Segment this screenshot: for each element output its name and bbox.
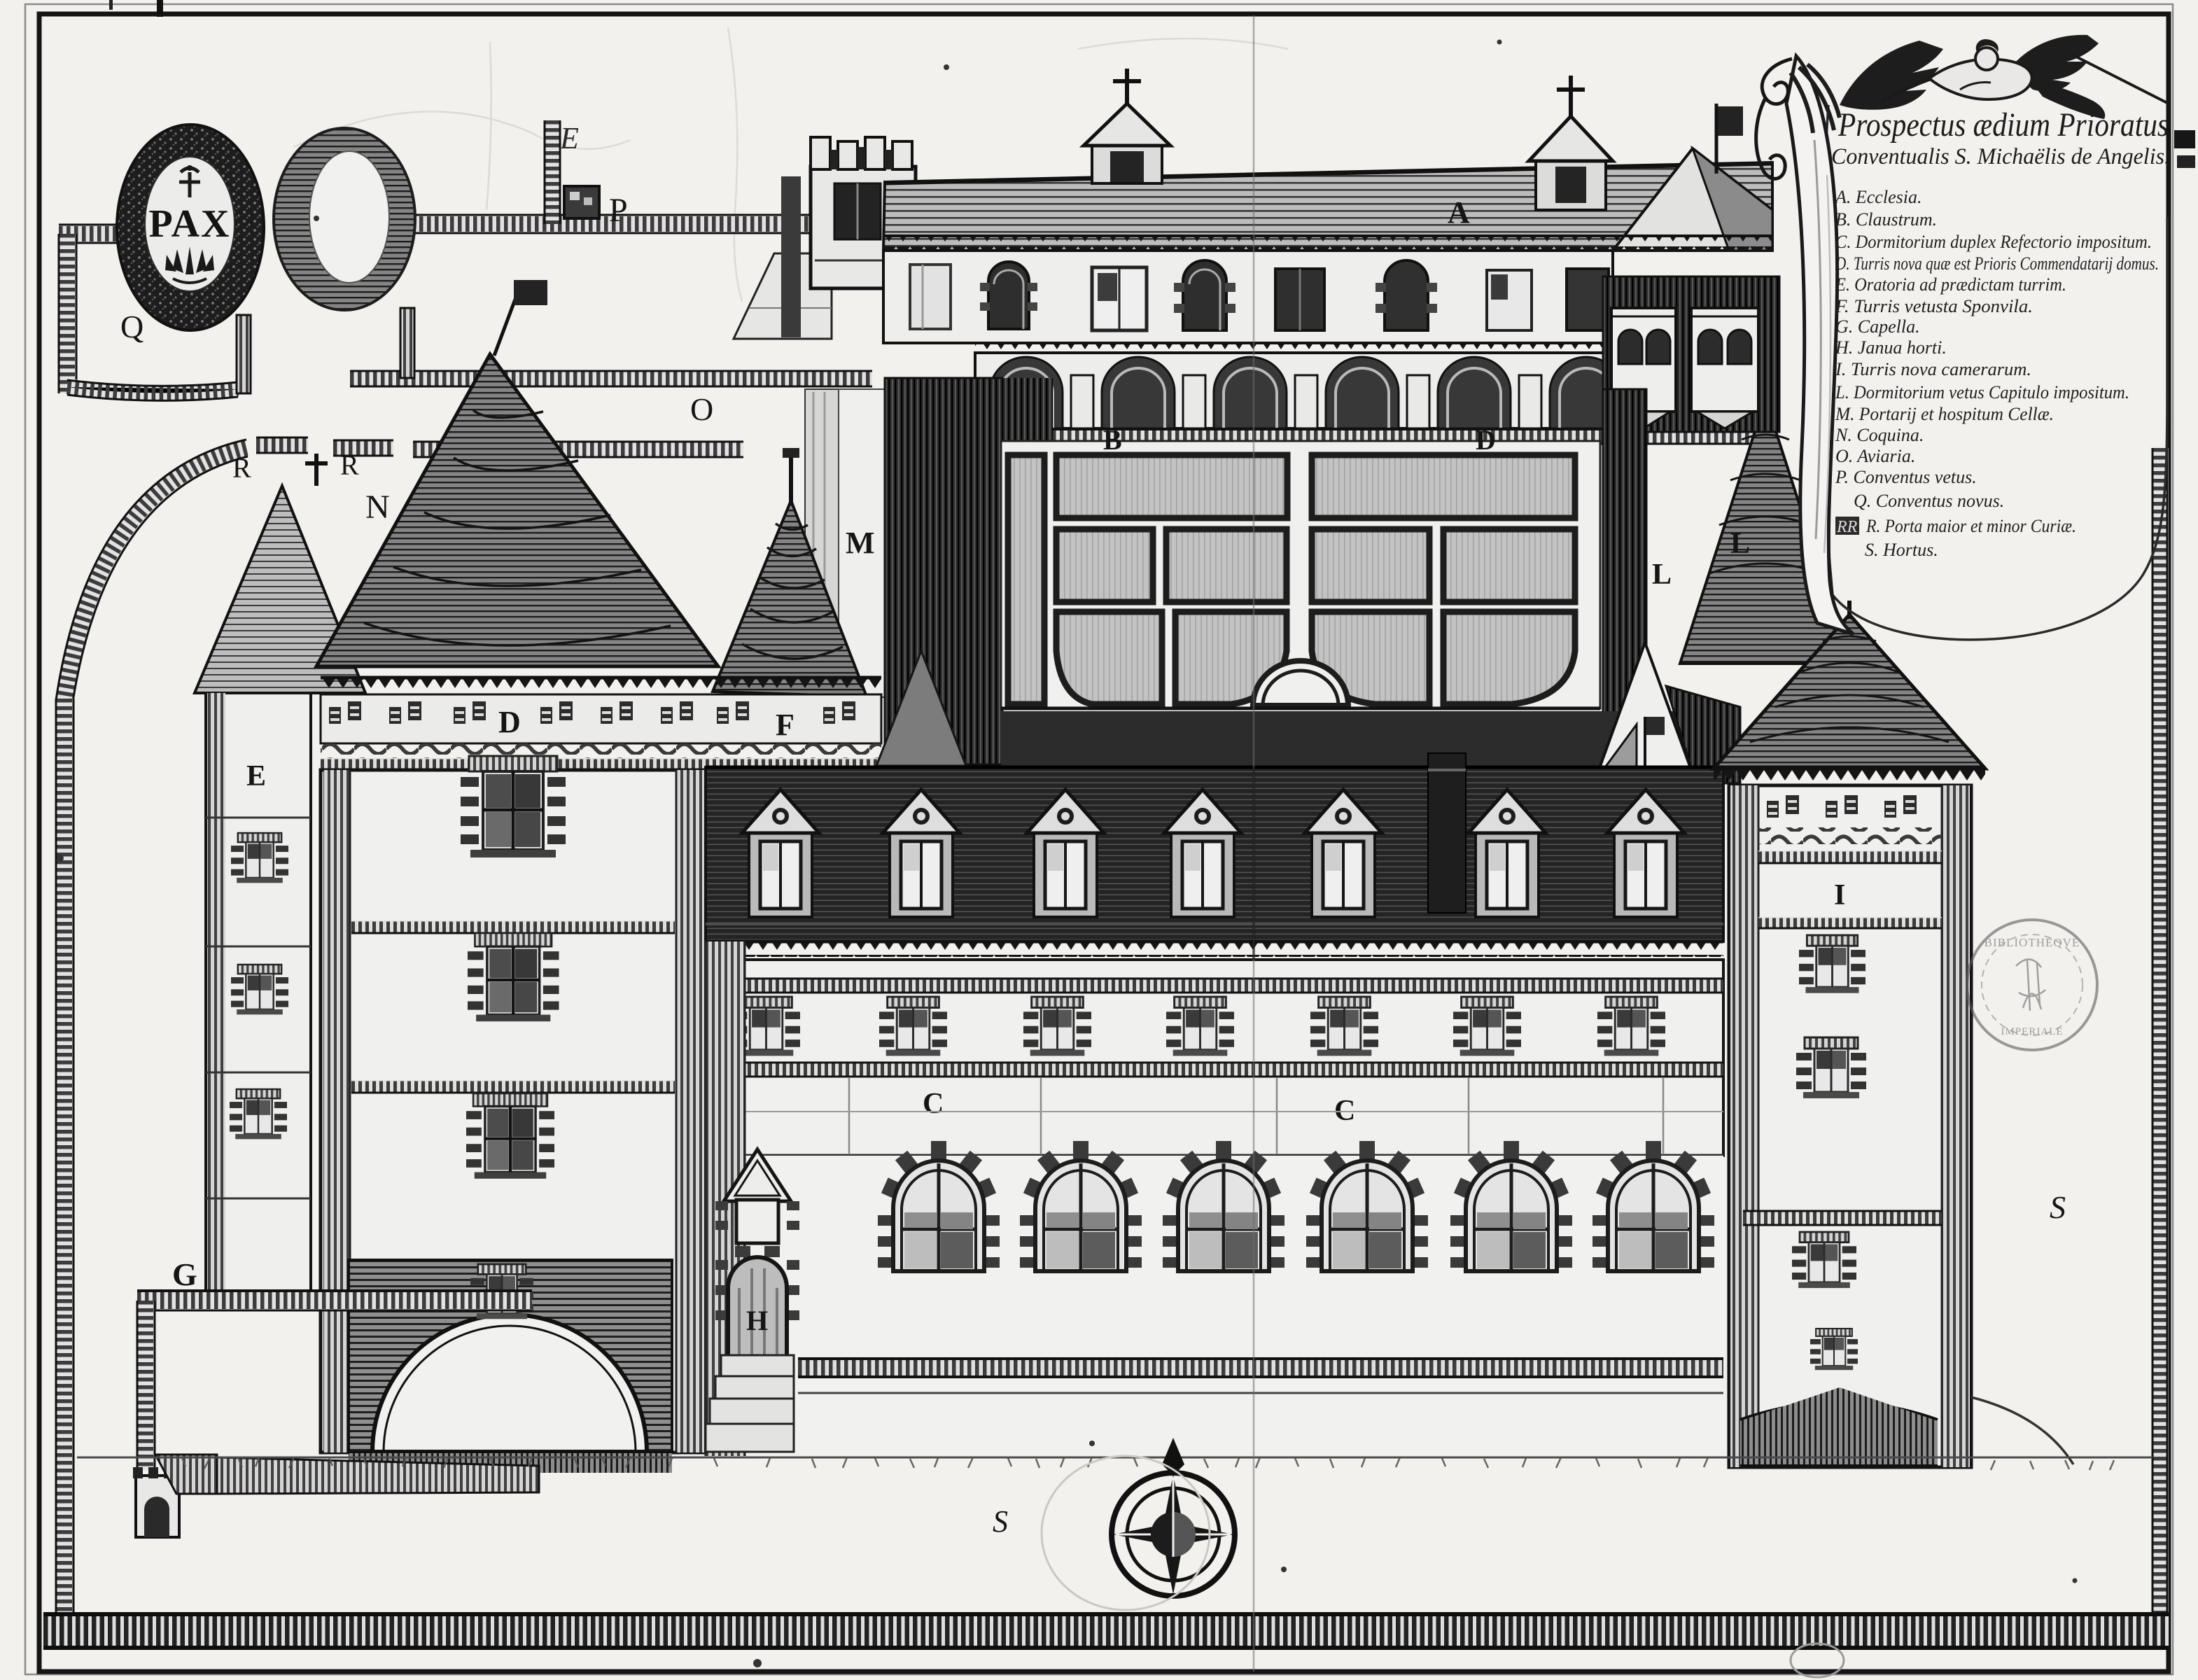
svg-text:P. Conventus vetus.: P. Conventus vetus. [1835, 467, 1977, 487]
svg-text:A. Ecclesia.: A. Ecclesia. [1834, 187, 1921, 207]
svg-text:F: F [776, 708, 794, 742]
svg-text:O: O [690, 391, 713, 427]
svg-text:I: I [1834, 879, 1845, 911]
svg-text:H: H [746, 1305, 768, 1336]
svg-text:R. Porta maior et minor Curiæ.: R. Porta maior et minor Curiæ. [1865, 516, 2076, 536]
svg-text:Q. Conventus novus.: Q. Conventus novus. [1854, 491, 2004, 511]
svg-text:M: M [846, 526, 875, 560]
svg-text:F. Turris vetusta Sponvila.: F. Turris vetusta Sponvila. [1835, 296, 2033, 316]
svg-text:Q: Q [120, 309, 143, 344]
svg-text:C. Dormitorium duplex Refector: C. Dormitorium duplex Refectorio imposit… [1835, 232, 2152, 252]
svg-text:B: B [1103, 424, 1122, 456]
svg-text:R: R [340, 449, 359, 481]
svg-text:D: D [1476, 424, 1496, 456]
svg-text:BIBLIOTHEQVE: BIBLIOTHEQVE [1984, 936, 2080, 949]
svg-text:RR: RR [1836, 518, 1858, 536]
svg-text:D: D [498, 705, 521, 739]
svg-text:N. Coquina.: N. Coquina. [1835, 425, 1924, 445]
svg-text:IMPERIALE: IMPERIALE [2001, 1026, 2064, 1037]
svg-text:Conventualis S. Michaëlis de A: Conventualis S. Michaëlis de Angelis. [1831, 144, 2170, 169]
svg-text:E: E [246, 760, 266, 792]
svg-text:I. Turris nova camerarum.: I. Turris nova camerarum. [1835, 359, 2031, 379]
svg-text:G: G [172, 1256, 197, 1292]
svg-text:O. Aviaria.: O. Aviaria. [1835, 446, 1915, 466]
svg-text:D. Turris nova quæ est Prioris: D. Turris nova quæ est Prioris Commendat… [1835, 253, 2159, 274]
svg-text:L: L [1652, 559, 1672, 591]
svg-text:C: C [923, 1088, 944, 1120]
svg-text:L: L [1730, 528, 1750, 560]
svg-text:P: P [609, 192, 628, 229]
svg-text:E: E [559, 121, 579, 155]
svg-text:N: N [365, 489, 390, 526]
svg-text:B. Claustrum.: B. Claustrum. [1835, 209, 1937, 230]
svg-text:L. Dormitorium vetus Capitulo: L. Dormitorium vetus Capitulo impositum. [1835, 382, 2129, 402]
svg-text:H. Janua horti.: H. Janua horti. [1835, 337, 1947, 358]
svg-text:A: A [1448, 195, 1470, 230]
svg-text:PAX: PAX [149, 202, 231, 246]
svg-text:G. Capella.: G. Capella. [1835, 316, 1920, 337]
svg-text:E. Oratoria ad prædictam turri: E. Oratoria ad prædictam turrim. [1835, 274, 2066, 295]
svg-text:M. Portarij et hospitum Cellæ.: M. Portarij et hospitum Cellæ. [1835, 404, 2054, 424]
svg-text:S: S [993, 1504, 1008, 1539]
svg-text:Prospectus ædium Prioratus: Prospectus ædium Prioratus [1837, 106, 2169, 143]
svg-text:S: S [2050, 1189, 2066, 1225]
svg-text:S. Hortus.: S. Hortus. [1865, 540, 1938, 560]
